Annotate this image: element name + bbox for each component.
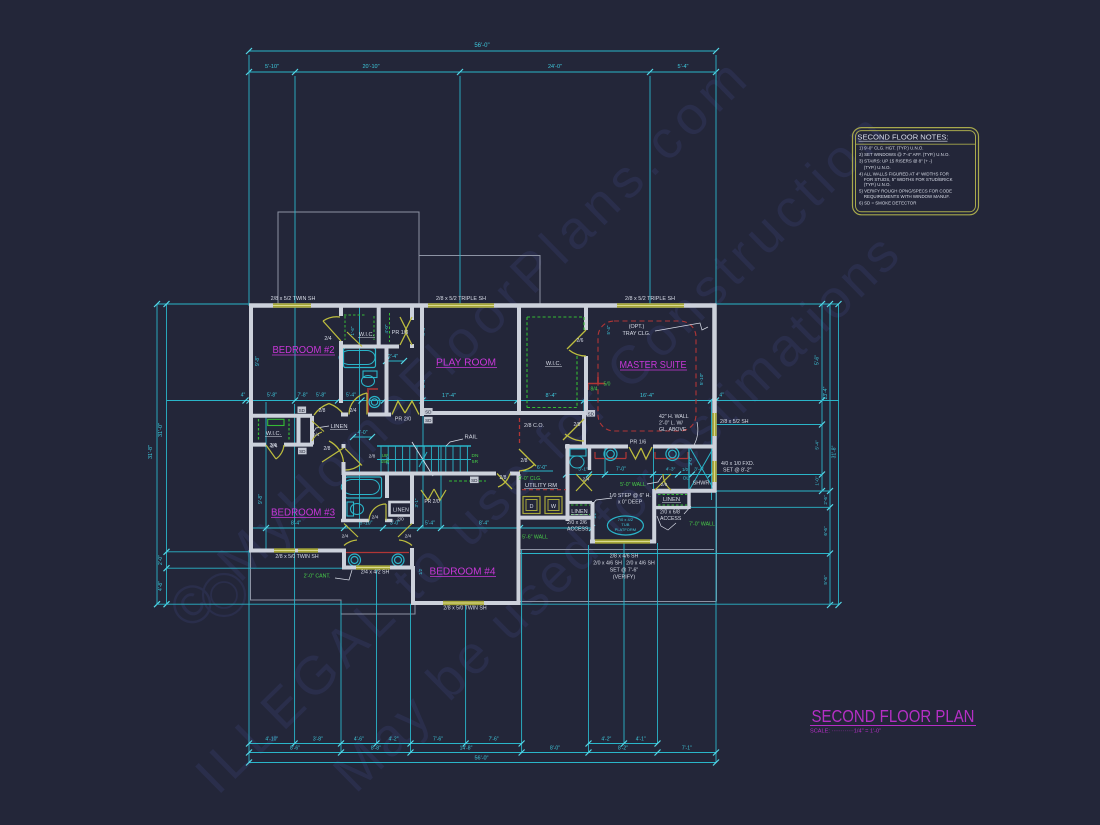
svg-text:1'-6": 1'-6": [350, 326, 355, 335]
svg-text:4'-3": 4'-3": [666, 467, 676, 473]
svg-text:(TYP.) U.N.O.: (TYP.) U.N.O.: [859, 182, 891, 187]
svg-text:LINEN: LINEN: [393, 508, 409, 514]
svg-text:MASTER SUITE: MASTER SUITE: [620, 360, 687, 371]
svg-text:SD: SD: [588, 411, 595, 416]
svg-text:8'-4": 8'-4": [479, 521, 489, 527]
svg-text:2/8 x 5/2 SH: 2/8 x 5/2 SH: [720, 419, 749, 425]
svg-text:2) SET WINDOWS @ 7'-4" AFF. (: 2) SET WINDOWS @ 7'-4" AFF. (TYP.) U.N.O…: [859, 152, 950, 157]
svg-text:5'-6": 5'-6": [823, 575, 828, 585]
svg-text:PR 2/0: PR 2/0: [395, 417, 411, 423]
svg-text:SECOND FLOOR NOTES:: SECOND FLOOR NOTES:: [857, 133, 948, 142]
svg-text:9'-8": 9'-8": [258, 494, 264, 504]
svg-text:8'-2": 8'-2": [618, 746, 628, 752]
svg-text:2/4: 2/4: [405, 534, 412, 540]
svg-text:14'-8": 14'-8": [460, 746, 473, 752]
svg-text:REQUIREMENTS WITH WINDOW MANUF: REQUIREMENTS WITH WINDOW MANUF.: [859, 194, 950, 199]
svg-text:2'-0" CANT.: 2'-0" CANT.: [304, 574, 331, 580]
svg-text:2/4 x 4/2 SH: 2/4 x 4/2 SH: [361, 570, 390, 576]
svg-text:SET @ 8'-2": SET @ 8'-2": [723, 468, 752, 474]
svg-text:5'-6" WALL: 5'-6" WALL: [522, 535, 548, 541]
svg-text:17'-4": 17'-4": [442, 393, 456, 399]
svg-text:2/8: 2/8: [324, 446, 331, 452]
svg-text:2'-0" L. W/: 2'-0" L. W/: [659, 421, 683, 427]
svg-text:7'-0" WALL: 7'-0" WALL: [689, 522, 715, 528]
svg-text:BEDROOM #2: BEDROOM #2: [273, 345, 335, 356]
svg-text:SCALE: ············1/4" = 1'-0: SCALE: ············1/4" = 1'-0": [810, 729, 881, 735]
svg-text:2/4: 2/4: [372, 515, 379, 521]
svg-text:2/6: 2/6: [577, 338, 584, 344]
svg-text:5/0: 5/0: [604, 382, 611, 388]
svg-text:8'-4": 8'-4": [546, 393, 557, 399]
svg-text:SD: SD: [425, 418, 432, 423]
svg-text:2'-4": 2'-4": [388, 354, 398, 360]
svg-text:W.I.C.: W.I.C.: [359, 332, 375, 338]
svg-text:2/4: 2/4: [350, 408, 357, 414]
svg-text:2/8: 2/8: [500, 475, 507, 481]
svg-text:2/4: 2/4: [313, 432, 320, 437]
svg-text:W.I.C.: W.I.C.: [266, 431, 282, 437]
svg-text:FOR STUDS, 5" WIDTHS FOR STUD/: FOR STUDS, 5" WIDTHS FOR STUD/BRICK: [859, 177, 953, 182]
svg-text:2/8 x 5/2 TWIN SH: 2/8 x 5/2 TWIN SH: [271, 296, 316, 302]
svg-text:2/8 x 5/0 TWIN SH: 2/8 x 5/0 TWIN SH: [275, 554, 318, 560]
svg-text:SD: SD: [299, 449, 306, 454]
svg-text:2'-0": 2'-0": [158, 555, 164, 565]
svg-text:8'-8": 8'-8": [371, 746, 381, 752]
svg-text:4'-6": 4'-6": [354, 737, 364, 743]
svg-text:1) 9'-0" CLG. HGT. (TYP.) U.N: 1) 9'-0" CLG. HGT. (TYP.) U.N.O.: [859, 146, 924, 151]
svg-text:(VERIFY): (VERIFY): [613, 575, 635, 581]
svg-text:2'-6": 2'-6": [823, 495, 828, 505]
svg-text:5R: 5R: [472, 459, 479, 465]
svg-text:7'-0": 7'-0": [616, 467, 626, 473]
svg-text:5'-4": 5'-4": [678, 64, 689, 70]
svg-text:ACCESS: ACCESS: [567, 527, 589, 533]
svg-text:8'-4": 8'-4": [291, 521, 301, 527]
svg-text:5'-8": 5'-8": [316, 393, 326, 399]
svg-text:5'-10": 5'-10": [265, 64, 279, 70]
svg-text:2/4: 2/4: [270, 443, 277, 449]
svg-text:2/8: 2/8: [521, 458, 528, 464]
svg-text:ACCESS: ACCESS: [660, 516, 682, 522]
svg-text:56'-0": 56'-0": [474, 756, 488, 762]
svg-text:4'-2": 4'-2": [389, 737, 399, 743]
svg-text:31'-0": 31'-0": [158, 423, 164, 437]
svg-text:2/8 x 5/2 TRIPLE SH: 2/8 x 5/2 TRIPLE SH: [436, 296, 486, 302]
svg-text:5'-0" WALL: 5'-0" WALL: [620, 482, 646, 488]
svg-text:W: W: [551, 504, 557, 510]
svg-text:3'-1": 3'-1": [414, 498, 419, 507]
svg-text:20'-10": 20'-10": [362, 64, 379, 70]
svg-text:4'-10": 4'-10": [265, 737, 278, 743]
svg-text:4'-1": 4'-1": [636, 737, 646, 743]
svg-text:LINEN: LINEN: [571, 509, 587, 515]
svg-text:2/0 x 4/6 SH 2/0 x 4/6 SH: 2/0 x 4/6 SH 2/0 x 4/6 SH: [593, 561, 655, 567]
svg-text:4'-2": 4'-2": [601, 737, 611, 743]
svg-text:4": 4": [719, 393, 724, 399]
svg-text:31'-8": 31'-8": [832, 445, 838, 458]
svg-text:D: D: [530, 504, 534, 510]
svg-text:15R: 15R: [381, 459, 390, 465]
svg-text:2/8 C.O.: 2/8 C.O.: [524, 423, 544, 429]
svg-text:5'-4": 5'-4": [425, 521, 435, 527]
svg-text:2/8 x 4/6 SH: 2/8 x 4/6 SH: [610, 554, 639, 560]
svg-text:2/0 x 2/6: 2/0 x 2/6: [567, 520, 587, 526]
svg-text:SD: SD: [425, 409, 432, 414]
svg-text:16'-4": 16'-4": [640, 393, 654, 399]
svg-text:56'-0": 56'-0": [474, 43, 489, 49]
svg-text:24'-0": 24'-0": [548, 64, 562, 70]
svg-text:2/8: 2/8: [369, 454, 376, 460]
svg-text:9'-0" CLG.: 9'-0" CLG.: [518, 476, 541, 482]
svg-text:6'-0": 6'-0": [537, 465, 547, 471]
svg-text:2/0: 2/0: [397, 517, 404, 523]
svg-text:(OPT.): (OPT.): [629, 324, 645, 330]
svg-text:UP: UP: [382, 453, 389, 459]
svg-text:4'-0": 4'-0": [384, 324, 389, 333]
svg-text:1/2: 1/2: [418, 568, 423, 574]
svg-text:6) SD = SMOKE DETECTOR: 6) SD = SMOKE DETECTOR: [859, 200, 916, 205]
svg-text:PR 1/6: PR 1/6: [630, 440, 646, 446]
svg-text:6'-6": 6'-6": [823, 526, 828, 536]
svg-text:SECOND FLOOR PLAN: SECOND FLOOR PLAN: [812, 706, 975, 726]
svg-text:SD: SD: [471, 478, 478, 483]
svg-text:UTILITY RM: UTILITY RM: [525, 483, 557, 489]
svg-text:2/8 x 5/0 TWIN SH: 2/8 x 5/0 TWIN SH: [443, 606, 486, 612]
svg-text:7'-8": 7'-8": [298, 393, 308, 399]
svg-text:GL. ABOVE: GL. ABOVE: [659, 427, 687, 433]
svg-text:8/4: 8/4: [591, 387, 598, 393]
svg-text:5'-4": 5'-4": [815, 440, 820, 450]
svg-text:2/0 x 6/8: 2/0 x 6/8: [660, 510, 680, 516]
svg-text:PR 2/0: PR 2/0: [424, 499, 440, 505]
svg-text:W.I.C.: W.I.C.: [546, 361, 562, 367]
svg-text:4/0 x 1/0 FXD.: 4/0 x 1/0 FXD.: [721, 461, 754, 467]
svg-text:(TYP.) U.N.O.: (TYP.) U.N.O.: [859, 165, 891, 170]
svg-text:2/6: 2/6: [661, 482, 668, 488]
svg-text:7'-6": 7'-6": [433, 737, 443, 743]
svg-text:RAIL: RAIL: [465, 435, 479, 441]
svg-text:PR 1/6: PR 1/6: [392, 330, 408, 336]
svg-text:8'-6": 8'-6": [290, 746, 300, 752]
svg-text:5'-4": 5'-4": [346, 393, 356, 399]
svg-text:5) VERIFY ROUGH OPNG/SPECS FOR: 5) VERIFY ROUGH OPNG/SPECS FOR CODE: [859, 189, 952, 194]
svg-text:3'-8": 3'-8": [313, 737, 323, 743]
svg-text:7'-1": 7'-1": [682, 746, 692, 752]
svg-text:31'-8": 31'-8": [148, 445, 154, 459]
svg-text:5'-8": 5'-8": [267, 393, 277, 399]
svg-text:2/8 x 5/2 TRIPLE SH: 2/8 x 5/2 TRIPLE SH: [625, 296, 675, 302]
svg-text:1/0 STEP @ 6" H.: 1/0 STEP @ 6" H.: [609, 493, 651, 499]
svg-text:LINEN: LINEN: [663, 497, 680, 503]
svg-text:5'-4": 5'-4": [606, 325, 611, 334]
svg-text:LINEN: LINEN: [330, 424, 347, 430]
svg-text:BEDROOM #3: BEDROOM #3: [271, 508, 335, 519]
svg-text:5'-10": 5'-10": [699, 373, 705, 386]
svg-text:5'-6": 5'-6": [815, 355, 821, 365]
svg-text:2/8: 2/8: [574, 422, 581, 428]
svg-text:7'-6": 7'-6": [489, 737, 499, 743]
svg-text:23'-4": 23'-4": [823, 386, 829, 399]
svg-text:PLATFORM: PLATFORM: [615, 527, 636, 532]
svg-text:DN: DN: [472, 453, 479, 459]
svg-text:SD: SD: [299, 408, 306, 413]
svg-text:PLAY ROOM: PLAY ROOM: [436, 358, 496, 369]
svg-text:TRAY CLG.: TRAY CLG.: [623, 331, 651, 337]
svg-text:2/4: 2/4: [324, 336, 331, 342]
svg-text:42" H. WALL: 42" H. WALL: [659, 414, 689, 420]
svg-text:1/0: 1/0: [682, 467, 688, 472]
svg-text:1'-0": 1'-0": [815, 476, 820, 486]
svg-text:4'-0": 4'-0": [358, 430, 368, 436]
svg-text:9'-8": 9'-8": [255, 356, 261, 366]
svg-text:4) ALL WALLS FIGURED AT 4" WID: 4) ALL WALLS FIGURED AT 4" WIDTHS FOR: [859, 172, 949, 177]
svg-text:4'-8": 4'-8": [158, 581, 164, 591]
svg-text:SET @ 7'-6": SET @ 7'-6": [610, 568, 639, 574]
svg-text:SHWR: SHWR: [693, 481, 710, 487]
svg-text:4": 4": [241, 393, 246, 399]
svg-text:8'-0": 8'-0": [550, 746, 560, 752]
svg-text:2/4: 2/4: [583, 477, 590, 483]
svg-text:3) STAIRS: UP 15 RISERS @ 8" (: 3) STAIRS: UP 15 RISERS @ 8" (+ -): [859, 159, 933, 164]
svg-text:x 0" DEEP: x 0" DEEP: [618, 500, 643, 506]
svg-text:2/4: 2/4: [342, 534, 349, 540]
svg-text:2/8: 2/8: [319, 408, 326, 414]
svg-text:BEDROOM #4: BEDROOM #4: [430, 567, 496, 578]
